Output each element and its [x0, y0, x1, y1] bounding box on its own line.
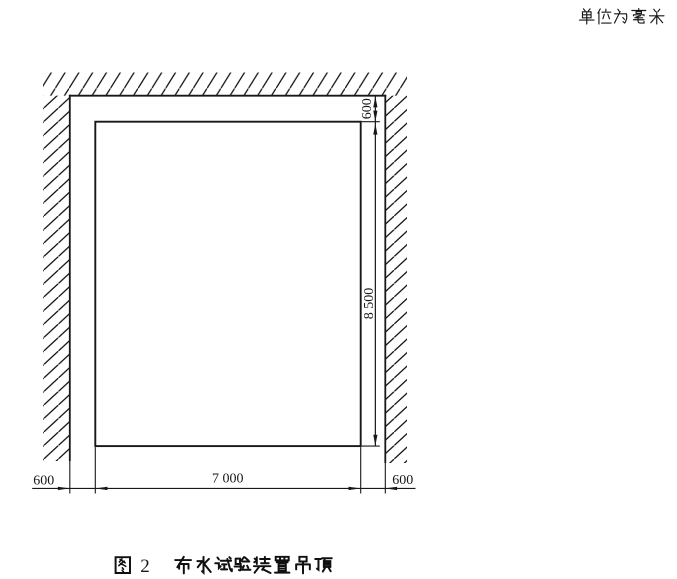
svg-text:8 500: 8 500: [362, 288, 377, 320]
svg-text:600: 600: [360, 98, 375, 119]
svg-text:7 000: 7 000: [212, 471, 244, 486]
svg-text:600: 600: [392, 473, 413, 488]
svg-text:600: 600: [33, 473, 54, 488]
svg-text:2: 2: [140, 556, 150, 577]
